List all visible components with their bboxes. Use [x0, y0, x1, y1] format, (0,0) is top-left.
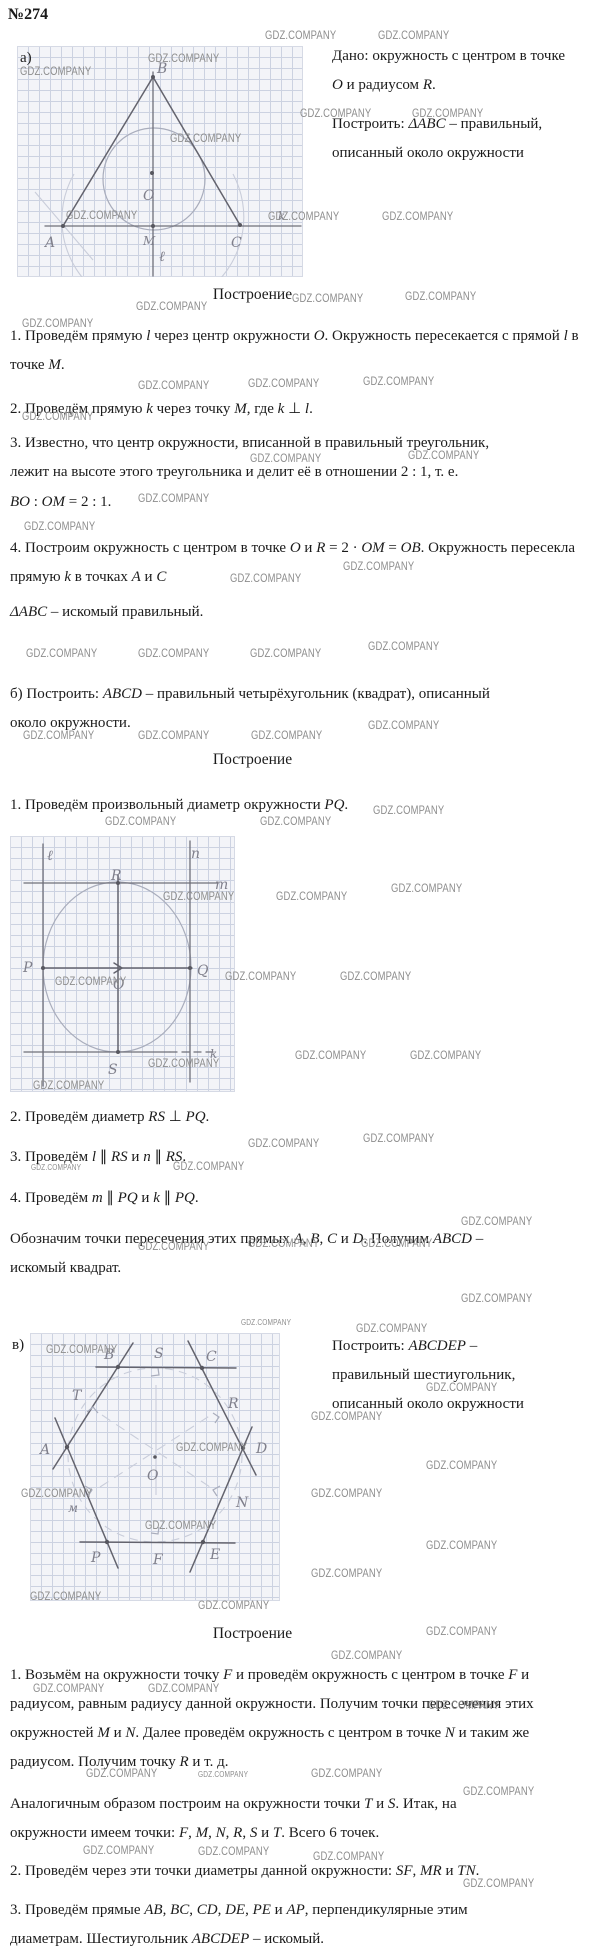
watermark: GDZ.COMPANY [382, 211, 453, 223]
watermark: GDZ.COMPANY [378, 30, 449, 42]
figure-b-label-O: O [113, 977, 125, 993]
watermark: GDZ.COMPANY [295, 1050, 366, 1062]
section-b-step-4: 4. Проведём m ∥ PQ и k ∥ PQ. [10, 1184, 585, 1213]
inscribed-circle [43, 882, 191, 1052]
figure-a-label-B: B [156, 61, 167, 77]
point-D [241, 1446, 245, 1450]
figure-c-label-B: B [103, 1347, 114, 1363]
side-PE [80, 1542, 235, 1543]
figure-a-label-A: A [43, 235, 55, 251]
figure-c-label-C: C [206, 1349, 217, 1365]
figure-c-label-D: D [255, 1441, 267, 1457]
point-A [65, 1445, 69, 1449]
figure-c-label-E: E [209, 1547, 220, 1563]
figure-c-label-T: T [72, 1388, 83, 1404]
right-angle-mark-F [151, 1527, 159, 1534]
figure-b-graph-paper: ℓ R n m P Q O S k [10, 836, 235, 1092]
figure-b-label-Q: Q [197, 963, 209, 979]
figure-a-graph-paper: B O M A C k ℓ [17, 46, 303, 277]
watermark: GDZ.COMPANY [138, 380, 209, 392]
figure-c-graph-paper: B S C T R A D O м N P F E [30, 1333, 280, 1601]
watermark: GDZ.COMPANY [26, 648, 97, 660]
section-v-step-1: 1. Возьмём на окружности точку F и прове… [10, 1661, 535, 1777]
section-b-step-2: 2. Проведём диаметр RS ⊥ PQ. [10, 1103, 585, 1132]
point-C [238, 223, 242, 227]
figure-b-label-P: P [22, 960, 33, 976]
side-AB [53, 1343, 133, 1469]
right-angle-mark-N [213, 1486, 220, 1496]
figure-a-label-k: k [278, 209, 285, 223]
figure-b-label-n: n [191, 846, 200, 862]
watermark: GDZ.COMPANY [198, 1600, 269, 1612]
section-b-intro: б) Построить: ABCD – правильный четырёху… [10, 680, 525, 738]
figure-c-label-S: S [154, 1346, 164, 1362]
section-v-build-line-1: Построить: ABCDEP – [332, 1332, 582, 1361]
point-E [201, 1540, 205, 1544]
section-a-step-1: 1. Проведём прямую l через центр окружно… [10, 322, 585, 380]
watermark: GDZ.COMPANY [426, 1540, 497, 1552]
point-O [153, 1455, 157, 1459]
point-O [150, 171, 154, 175]
point-C [200, 1366, 204, 1370]
section-v-build-line-3: описанный около окружности [332, 1390, 582, 1419]
section-b-conclusion: Обозначим точки пересечения этих прямых … [10, 1225, 510, 1283]
section-a-label: а) [20, 50, 32, 67]
heading-construction-b: Построение [0, 751, 505, 769]
figure-c-label-M: м [68, 1501, 78, 1515]
inscribed-circle [103, 128, 205, 230]
triangle-side-BC [153, 77, 240, 225]
figure-c-label-P: P [90, 1550, 101, 1566]
point-B [116, 1365, 120, 1369]
point-A [61, 224, 65, 228]
figure-b-label-k: k [210, 1047, 217, 1061]
watermark: GDZ.COMPANY [311, 1568, 382, 1580]
section-v-build: Построить: ABCDEP – правильный шестиугол… [332, 1332, 582, 1419]
figure-b-drawing: ℓ R n m P Q O S k [10, 836, 235, 1092]
heading-construction-v: Построение [0, 1625, 505, 1643]
section-v-step-3: 3. Проведём прямые AB, BC, CD, DE, PE и … [10, 1896, 510, 1954]
section-a-result: ΔABC – искомый правильный. [10, 598, 585, 627]
figure-b-label-m: m [215, 877, 228, 893]
section-v-label: в) [12, 1337, 24, 1354]
figure-c-label-A: A [38, 1442, 50, 1458]
triangle-side-AB [63, 77, 153, 226]
point-S [116, 1050, 120, 1054]
exercise-number: №274 [8, 6, 48, 24]
point-B [151, 75, 155, 79]
point-Q [188, 966, 192, 970]
figure-a-label-M: M [142, 234, 156, 248]
side-AP [55, 1418, 118, 1568]
figure-a-label-O: O [143, 188, 155, 204]
watermark: GDZ.COMPANY [461, 1293, 532, 1305]
section-v-build-line-2: правильный шестиугольник, [332, 1361, 582, 1390]
right-angle-mark-R [213, 1413, 219, 1423]
watermark: GDZ.COMPANY [225, 971, 296, 983]
figure-b-label-S: S [108, 1062, 118, 1078]
section-a-step-4: 4. Построим окружность с центром в точке… [10, 534, 585, 592]
figure-c-drawing: B S C T R A D O м N P F E [30, 1333, 280, 1601]
figure-c-label-O: O [147, 1468, 159, 1484]
figure-a-drawing: B O M A C k ℓ [17, 46, 303, 277]
section-b-step-3: 3. Проведём l ∥ RS и n ∥ RS. [10, 1143, 585, 1172]
section-b-step-1: 1. Проведём произвольный диаметр окружно… [10, 791, 585, 820]
point-M [151, 224, 155, 228]
watermark: GDZ.COMPANY [250, 648, 321, 660]
right-angle-mark-S [151, 1368, 159, 1376]
section-a-step-2: 2. Проведём прямую k через точку M, где … [10, 395, 585, 424]
section-v-note: Аналогичным образом построим на окружнос… [10, 1790, 510, 1848]
inscribed-circle [68, 1368, 242, 1542]
watermark: GDZ.COMPANY [391, 883, 462, 895]
figure-c-label-N: N [235, 1495, 249, 1511]
figure-a-label-l: ℓ [159, 249, 165, 265]
section-a-formula: BO : OM = 2 : 1. [10, 488, 585, 517]
watermark: GDZ.COMPANY [276, 891, 347, 903]
watermark: GDZ.COMPANY [138, 648, 209, 660]
figure-c-label-R: R [227, 1396, 239, 1412]
watermark: GDZ.COMPANY [311, 1488, 382, 1500]
side-CD [188, 1341, 256, 1475]
watermark: GDZ.COMPANY [368, 641, 439, 653]
watermark: GDZ.COMPANY [426, 1460, 497, 1472]
heading-construction-a: Построение [0, 286, 505, 304]
watermark: GDZ.COMPANY [340, 971, 411, 983]
section-a-given: Дано: окружность с центром в точке O и р… [332, 42, 572, 100]
section-a-build: Построить: ΔABC – правильный, описанный … [332, 110, 572, 168]
section-v-step-2: 2. Проведём через эти точки диаметры дан… [10, 1857, 585, 1886]
document-page: { "title": "№274", "colors": { "text": "… [0, 0, 600, 1960]
point-P [105, 1540, 109, 1544]
point-P [41, 966, 45, 970]
figure-c-label-F: F [152, 1552, 164, 1568]
watermark: GDZ.COMPANY [24, 521, 95, 533]
watermark: GDZ.COMPANY [265, 30, 336, 42]
section-a-step-3: 3. Известно, что центр окружности, вписа… [10, 429, 530, 487]
watermark: GDZ.COMPANY [241, 1318, 291, 1327]
figure-b-label-l: ℓ [47, 848, 53, 864]
watermark: GDZ.COMPANY [410, 1050, 481, 1062]
figure-b-label-R: R [110, 868, 122, 884]
figure-a-label-C: C [231, 235, 242, 251]
